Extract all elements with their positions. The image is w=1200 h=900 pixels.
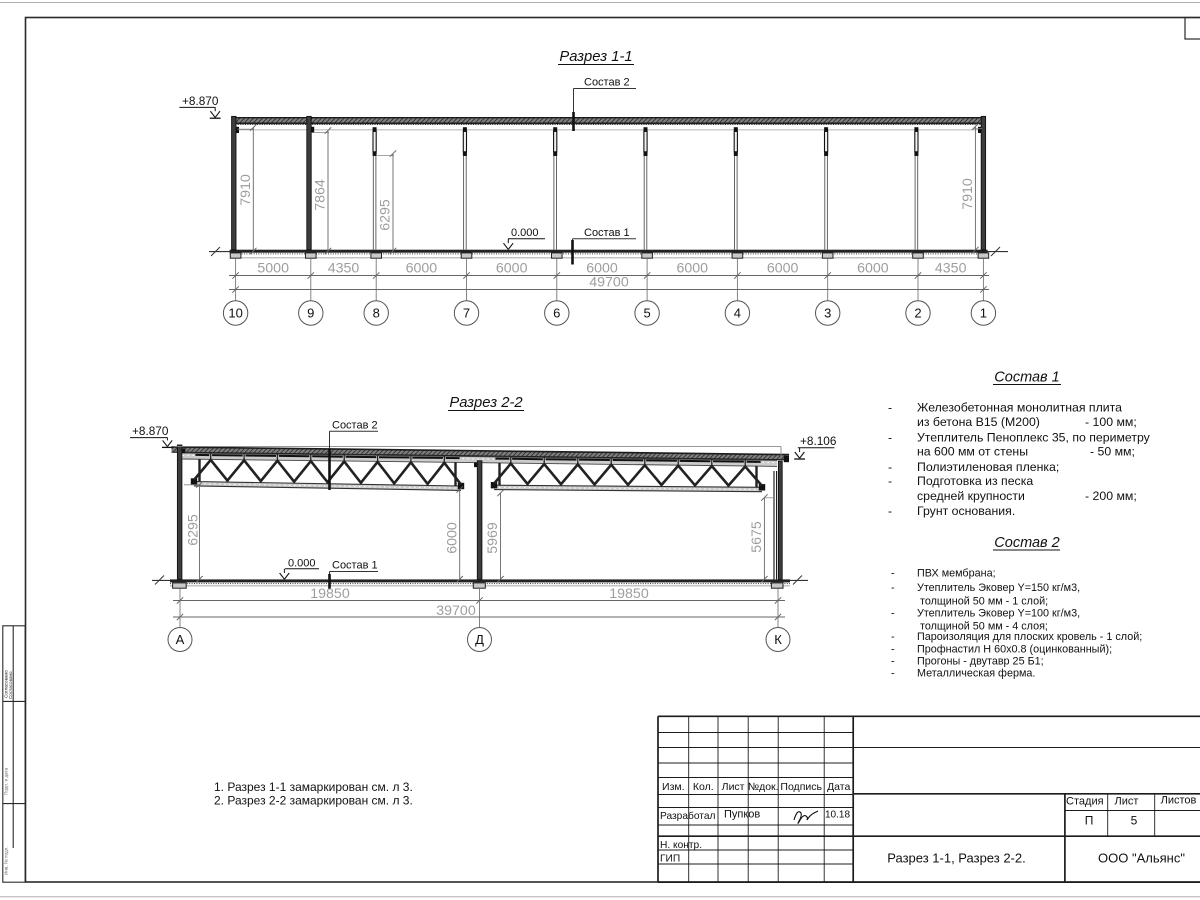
svg-text:7910: 7910 [238, 174, 254, 206]
svg-text:Согласовано: Согласовано [8, 671, 13, 699]
svg-text:ООО "Альянс": ООО "Альянс" [1098, 851, 1185, 866]
svg-text:6000: 6000 [857, 260, 889, 276]
svg-text:Инв. № подл.: Инв. № подл. [4, 846, 9, 875]
svg-text:Разрез 1-1, Разрез 2-2.: Разрез 1-1, Разрез 2-2. [887, 851, 1025, 866]
svg-text:+8.870: +8.870 [132, 424, 169, 438]
svg-text:-: - [888, 460, 892, 474]
svg-text:1. Разрез 1-1 замаркирован см.: 1. Разрез 1-1 замаркирован см. л 3. [214, 780, 413, 794]
svg-text:6: 6 [553, 306, 560, 321]
svg-text:на 600 мм от стены: на 600 мм от стены [917, 445, 1028, 459]
svg-text:6000: 6000 [406, 260, 438, 276]
svg-text:П: П [1085, 814, 1094, 828]
svg-text:Прогоны - двутавр 25 Б1;: Прогоны - двутавр 25 Б1; [917, 656, 1044, 668]
svg-text:4: 4 [734, 306, 741, 321]
svg-text:6000: 6000 [444, 522, 460, 554]
svg-text:Подп. и дата: Подп. и дата [4, 767, 9, 795]
svg-text:+8.870: +8.870 [182, 94, 219, 108]
svg-text:4350: 4350 [328, 260, 360, 276]
svg-text:6000: 6000 [677, 260, 709, 276]
svg-text:№док.: №док. [748, 781, 779, 793]
svg-text:7864: 7864 [313, 179, 329, 211]
svg-text:Пупков: Пупков [724, 809, 760, 821]
svg-text:5675: 5675 [749, 521, 765, 553]
svg-text:Стадия: Стадия [1066, 796, 1104, 808]
svg-text:ПВХ мембрана;: ПВХ мембрана; [917, 568, 996, 580]
svg-text:Металлическая ферма.: Металлическая ферма. [917, 668, 1035, 680]
svg-text:К: К [774, 632, 782, 647]
svg-text:толщиной 50 мм - 1 слой;: толщиной 50 мм - 1 слой; [920, 595, 1048, 607]
svg-text:Лист: Лист [722, 781, 745, 793]
svg-text:19850: 19850 [609, 586, 649, 602]
svg-text:6000: 6000 [767, 260, 799, 276]
svg-text:-: - [891, 582, 895, 594]
svg-text:Состав 2: Состав 2 [584, 77, 630, 89]
svg-text:- 50 мм;: - 50 мм; [1090, 445, 1135, 459]
svg-text:-: - [891, 568, 895, 580]
svg-text:5: 5 [643, 306, 650, 321]
svg-text:1: 1 [980, 306, 987, 321]
svg-text:Подпись: Подпись [780, 781, 822, 793]
svg-text:0.000: 0.000 [288, 557, 316, 569]
svg-text:7: 7 [463, 306, 470, 321]
svg-text:Утеплитель Пеноплекс 35, по пе: Утеплитель Пеноплекс 35, по периметру [917, 430, 1151, 444]
svg-text:19850: 19850 [310, 586, 350, 602]
svg-text:9: 9 [307, 306, 314, 321]
svg-text:Разрез 1-1: Разрез 1-1 [559, 49, 632, 65]
svg-text:Н. контр.: Н. контр. [660, 840, 702, 851]
svg-text:49700: 49700 [589, 275, 629, 291]
svg-text:Состав 2: Состав 2 [994, 535, 1059, 551]
svg-text:39700: 39700 [436, 603, 476, 619]
svg-text:Полиэтиленовая пленка;: Полиэтиленовая пленка; [917, 460, 1059, 474]
svg-text:5: 5 [1131, 814, 1138, 828]
svg-text:-: - [891, 668, 895, 680]
svg-text:Утеплитель Эковер Y=150 кг/м3,: Утеплитель Эковер Y=150 кг/м3, [917, 582, 1080, 594]
svg-text:Утеплитель Эковер Y=100 кг/м3,: Утеплитель Эковер Y=100 кг/м3, [917, 608, 1080, 620]
svg-text:-: - [888, 474, 892, 488]
svg-text:Профнастил Н 60х0.8 (оцинкован: Профнастил Н 60х0.8 (оцинкованный); [917, 643, 1112, 655]
svg-text:6295: 6295 [186, 514, 202, 546]
svg-text:8: 8 [373, 306, 380, 321]
svg-text:-: - [891, 656, 895, 668]
svg-text:-: - [888, 401, 892, 415]
svg-text:Пароизоляция для плоских крове: Пароизоляция для плоских кровель - 1 сло… [917, 631, 1142, 643]
svg-text:Изм.: Изм. [662, 781, 685, 793]
svg-text:5969: 5969 [485, 522, 501, 554]
svg-text:10: 10 [228, 306, 242, 321]
svg-text:2: 2 [914, 306, 921, 321]
svg-text:Состав 1: Состав 1 [994, 370, 1059, 386]
svg-text:Разрез 2-2: Разрез 2-2 [449, 395, 523, 411]
svg-text:ГИП: ГИП [660, 854, 680, 865]
svg-text:- 100 мм;: - 100 мм; [1085, 415, 1137, 429]
svg-text:-: - [891, 643, 895, 655]
svg-text:Подготовка из песка: Подготовка из песка [917, 474, 1033, 488]
svg-text:Грунт основания.: Грунт основания. [917, 504, 1015, 518]
svg-text:из бетона В15 (М200): из бетона В15 (М200) [917, 415, 1040, 429]
svg-text:Д: Д [475, 632, 484, 647]
svg-text:Состав 2: Состав 2 [332, 420, 378, 432]
svg-text:А: А [176, 632, 185, 647]
svg-text:6000: 6000 [496, 260, 528, 276]
svg-text:-: - [888, 430, 892, 444]
svg-text:6295: 6295 [378, 199, 394, 231]
svg-text:Состав 1: Состав 1 [332, 560, 378, 572]
svg-text:-: - [891, 608, 895, 620]
svg-text:Железобетонная монолитная пли: Железобетонная монолитная плита [917, 401, 1122, 415]
svg-text:Лист: Лист [1115, 796, 1139, 808]
svg-text:Кол.: Кол. [693, 781, 714, 793]
svg-text:0.000: 0.000 [511, 227, 539, 239]
svg-text:Дата: Дата [827, 781, 850, 793]
svg-text:+8.106: +8.106 [800, 434, 837, 448]
svg-text:5000: 5000 [257, 260, 289, 276]
svg-text:4350: 4350 [935, 260, 967, 276]
svg-text:Разработал: Разработал [660, 810, 716, 822]
svg-text:Состав 1: Состав 1 [584, 227, 630, 239]
svg-text:средней крупности: средней крупности [917, 489, 1025, 503]
svg-text:2. Разрез 2-2 замаркирован см.: 2. Разрез 2-2 замаркирован см. л 3. [214, 794, 413, 808]
svg-text:7910: 7910 [960, 178, 976, 210]
svg-text:3: 3 [824, 306, 831, 321]
svg-text:- 200 мм;: - 200 мм; [1085, 489, 1137, 503]
svg-text:10.18: 10.18 [825, 810, 850, 821]
svg-text:-: - [888, 504, 892, 518]
svg-text:Листов: Листов [1161, 795, 1197, 807]
svg-text:-: - [891, 631, 895, 643]
